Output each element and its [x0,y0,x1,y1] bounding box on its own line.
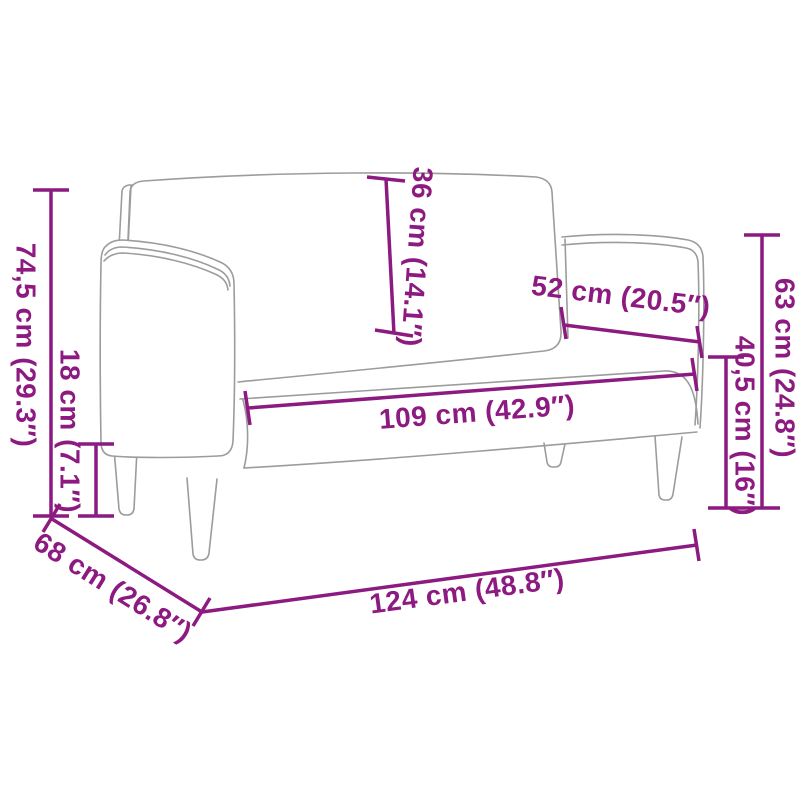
overall-depth-label: 68 cm (26.8″) [28,526,197,648]
dimension-backrest-height: 36 cm (14.1″) [367,166,439,348]
leg-height-label: 18 cm (7.1″) [55,349,86,513]
dimension-overall-width: 124 cm (48.8″) [202,529,699,620]
sofa-armrest-left [100,240,234,458]
dimension-seat-width: 109 cm (42.9″) [245,358,697,435]
seat-depth-label: 52 cm (20.5″) [530,270,713,323]
sofa-base-bottom-edge [244,432,697,468]
sofa-leg-front-left [187,478,217,560]
seat-height-label: 40,5 cm (16″) [730,336,761,516]
sofa-outline [100,173,704,560]
dimension-diagram: 74,5 cm (29.3″) 18 cm (7.1″) 36 cm (14.1… [0,0,800,800]
dimension-seat-height: 40,5 cm (16″) [708,336,761,516]
sofa-leg-rear-left [114,449,137,515]
backrest-height-label: 36 cm (14.1″) [395,166,438,348]
overall-width-label: 124 cm (48.8″) [368,562,567,619]
overall-height-label: 74,5 cm (29.3″) [11,243,42,448]
dimension-overall-depth: 68 cm (26.8″) [28,504,210,648]
sofa-armrest-right [562,234,704,428]
sofa-leg-rear-right [544,443,565,467]
product-dimension-image: 74,5 cm (29.3″) 18 cm (7.1″) 36 cm (14.1… [0,0,800,800]
sofa-leg-front-right [655,436,682,500]
armrest-height-label: 63 cm (24.8″) [770,278,800,458]
